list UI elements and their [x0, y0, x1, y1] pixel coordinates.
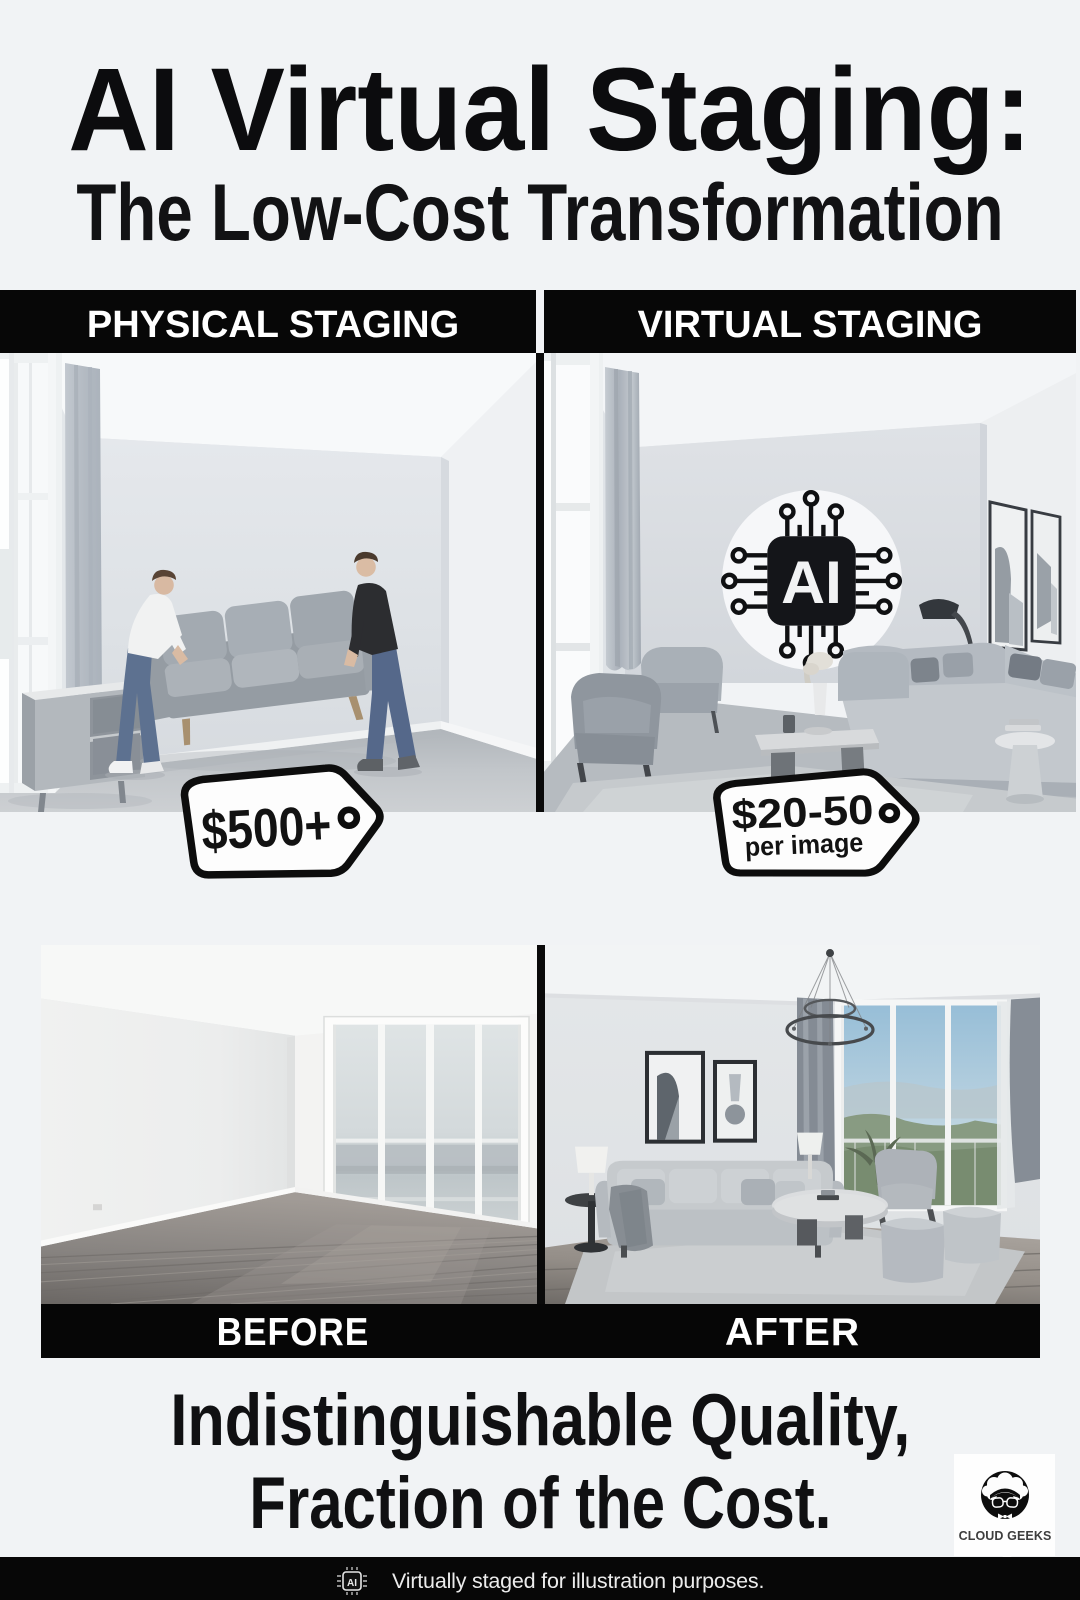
svg-text:AI: AI	[347, 1578, 357, 1589]
svg-text:per image: per image	[744, 827, 864, 862]
svg-text:$500+: $500+	[200, 794, 333, 862]
svg-text:CLOUD GEEKS: CLOUD GEEKS	[959, 1529, 1052, 1543]
svg-text:AI: AI	[781, 549, 842, 616]
